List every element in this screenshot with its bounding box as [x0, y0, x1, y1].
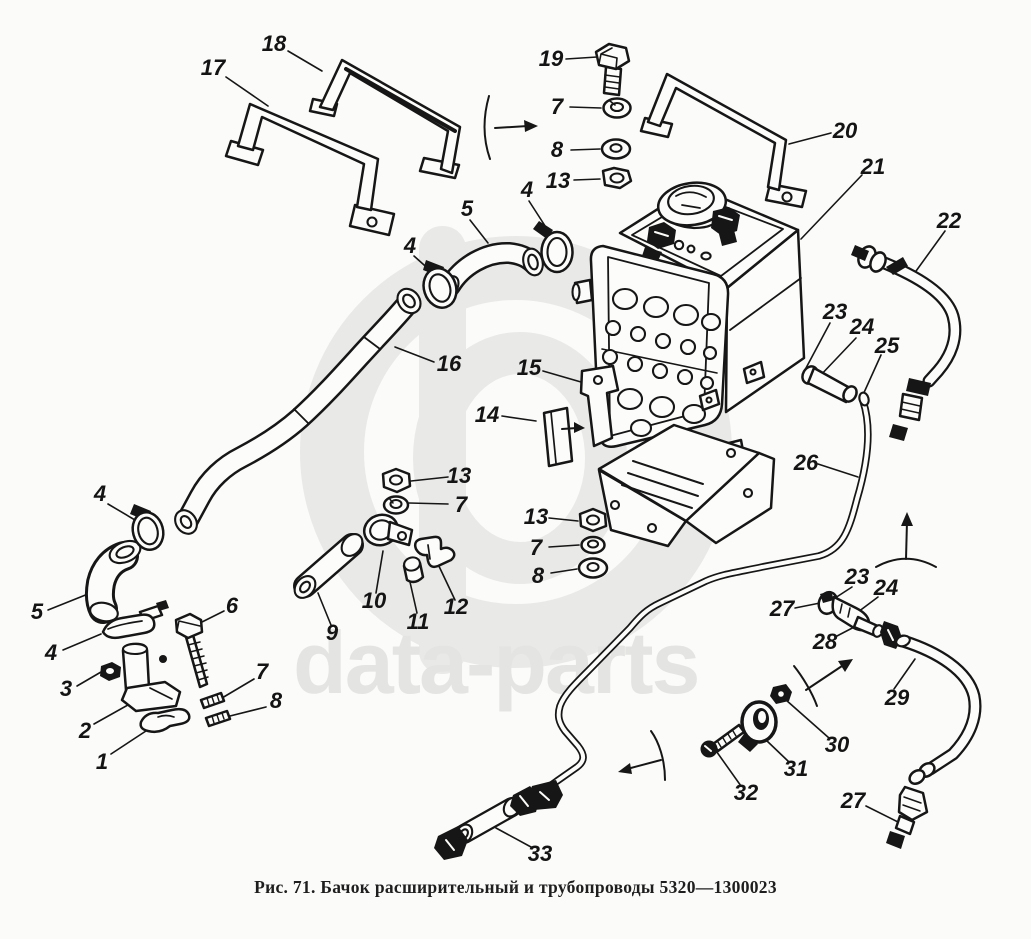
callout-19: 19 [539, 46, 563, 72]
callout-13: 13 [447, 463, 471, 489]
callout-23: 23 [823, 299, 847, 325]
callout-8: 8 [532, 563, 544, 589]
callout-20: 20 [833, 118, 857, 144]
callout-32: 32 [734, 780, 758, 806]
callout-10: 10 [362, 588, 386, 614]
callout-18: 18 [262, 31, 286, 57]
callout-7: 7 [256, 659, 268, 685]
callout-17: 17 [201, 55, 225, 81]
callout-4: 4 [404, 233, 416, 259]
callout-7: 7 [551, 94, 563, 120]
callout-22: 22 [937, 208, 961, 234]
callout-28: 28 [813, 629, 837, 655]
callout-13: 13 [546, 168, 570, 194]
callout-12: 12 [444, 594, 468, 620]
callout-1: 1 [96, 749, 108, 775]
callout-7: 7 [530, 535, 542, 561]
callout-24: 24 [874, 575, 898, 601]
callout-layer: 1718197813454202122232425161514137137826… [0, 0, 1031, 939]
callout-2: 2 [79, 718, 91, 744]
callout-29: 29 [885, 685, 909, 711]
scanned-catalog-page: data-parts [0, 0, 1031, 939]
callout-24: 24 [850, 314, 874, 340]
callout-33: 33 [528, 841, 552, 867]
callout-6: 6 [226, 593, 238, 619]
callout-4: 4 [45, 640, 57, 666]
callout-4: 4 [94, 481, 106, 507]
callout-7: 7 [455, 492, 467, 518]
callout-30: 30 [825, 732, 849, 758]
callout-11: 11 [407, 609, 430, 635]
callout-21: 21 [861, 154, 885, 180]
callout-4: 4 [521, 177, 533, 203]
callout-3: 3 [60, 676, 72, 702]
callout-31: 31 [784, 756, 808, 782]
callout-27: 27 [841, 788, 865, 814]
callout-5: 5 [31, 599, 43, 625]
callout-8: 8 [551, 137, 563, 163]
callout-14: 14 [475, 402, 499, 428]
figure-caption: Рис. 71. Бачок расширительный и трубопро… [0, 877, 1031, 898]
callout-25: 25 [875, 333, 899, 359]
callout-5: 5 [461, 196, 473, 222]
callout-8: 8 [270, 688, 282, 714]
callout-23: 23 [845, 564, 869, 590]
callout-13: 13 [524, 504, 548, 530]
callout-16: 16 [437, 351, 461, 377]
callout-27: 27 [770, 596, 794, 622]
callout-26: 26 [794, 450, 818, 476]
callout-9: 9 [326, 620, 338, 646]
callout-15: 15 [517, 355, 541, 381]
